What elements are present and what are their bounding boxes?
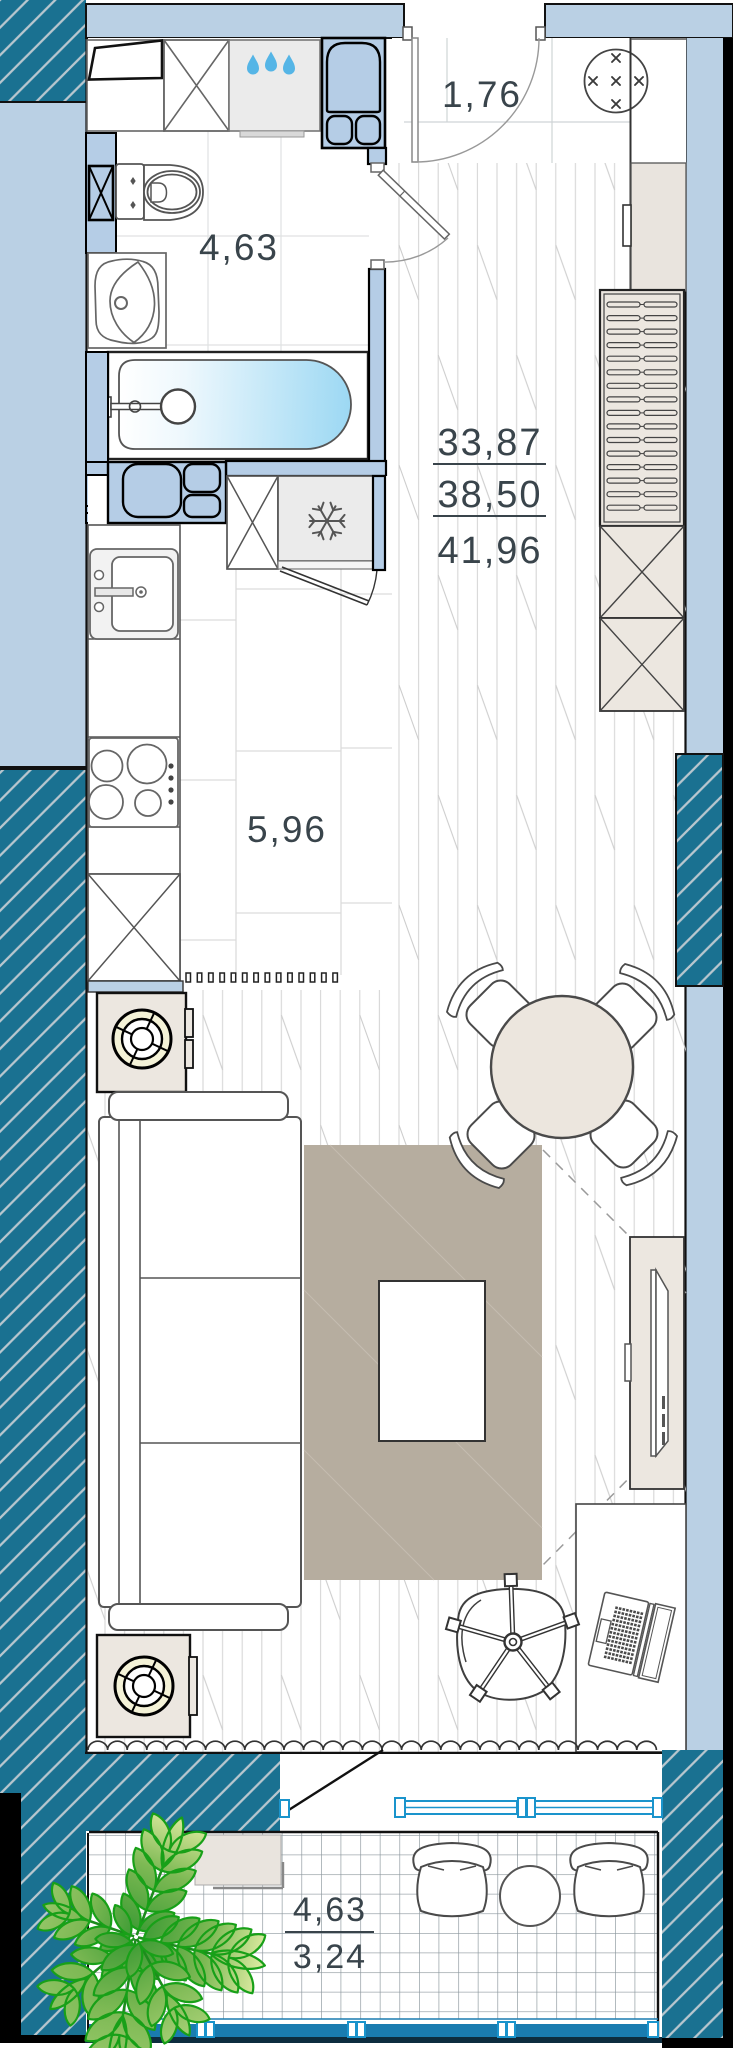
svg-text:33,87: 33,87 xyxy=(437,422,542,464)
svg-text:3,24: 3,24 xyxy=(293,1938,367,1976)
svg-text:38,50: 38,50 xyxy=(437,474,542,516)
svg-text:41,96: 41,96 xyxy=(437,530,542,572)
svg-text:4,63: 4,63 xyxy=(293,1891,367,1929)
svg-text:4,63: 4,63 xyxy=(199,227,279,268)
svg-text:1,76: 1,76 xyxy=(442,74,522,115)
svg-text:5,96: 5,96 xyxy=(247,809,327,850)
